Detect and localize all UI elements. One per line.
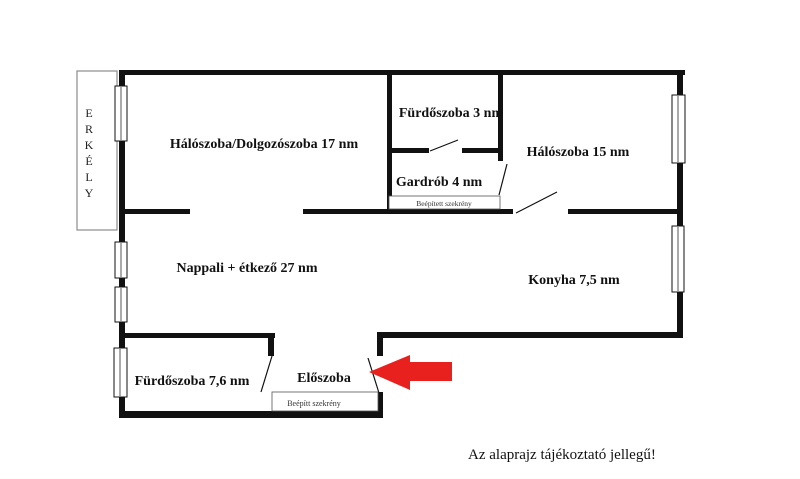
wall-bath76-top xyxy=(119,333,275,338)
living-window-2 xyxy=(115,287,127,322)
wall-mid-horizontal-center xyxy=(303,209,513,214)
room-label-bathroom-large: Fürdőszoba 7,6 nm xyxy=(135,374,250,389)
wardrobe-closet-label: Beépített szekrény xyxy=(416,199,472,208)
wall-bath3-wardrobe-right xyxy=(462,148,503,153)
bathroom-small-door xyxy=(430,140,458,151)
floor-plan-drawing: E R K É L Y xyxy=(0,0,800,479)
balcony-letter: Y xyxy=(85,186,94,200)
wall-bath3-wardrobe-left xyxy=(387,148,429,153)
wall-hallway-left-stub xyxy=(268,333,274,356)
room-label-living-dining: Nappali + étkező 27 nm xyxy=(177,261,318,276)
room-label-bathroom-small: Fürdőszoba 3 nm xyxy=(399,106,504,121)
balcony-letter: K xyxy=(85,138,94,152)
wall-hallway-right-upper xyxy=(377,332,383,356)
room-label-wardrobe: Gardrób 4 nm xyxy=(396,175,483,190)
floor-plan-page: E R K É L Y xyxy=(0,0,800,479)
windows xyxy=(114,86,685,397)
room-label-bedroom: Hálószoba 15 nm xyxy=(527,145,630,160)
balcony-letter: R xyxy=(85,122,93,136)
bathroom-large-door xyxy=(261,356,272,392)
disclaimer-note: Az alaprajz tájékoztató jellegű! xyxy=(468,447,656,463)
hallway-closet-label: Beépítt szekrény xyxy=(287,399,341,408)
wall-outer-bottom xyxy=(119,411,383,418)
balcony-door-window xyxy=(115,86,127,141)
kitchen-window xyxy=(672,226,684,292)
room-label-bedroom-office: Hálószoba/Dolgozószoba 17 nm xyxy=(170,137,359,152)
entrance-arrow-icon xyxy=(369,355,452,390)
wall-bedroom17-bath3-divider xyxy=(387,70,392,213)
wall-outer-top xyxy=(119,70,685,75)
balcony: E R K É L Y xyxy=(77,71,117,230)
bedroom15-window xyxy=(672,95,685,163)
room-label-kitchen: Konyha 7,5 nm xyxy=(528,273,620,288)
wall-mid-horizontal-right xyxy=(568,209,683,214)
balcony-outline xyxy=(77,71,117,230)
living-window-1 xyxy=(115,242,127,278)
balcony-letter: E xyxy=(85,106,92,120)
balcony-letter: É xyxy=(85,154,92,168)
bathroom-large-window xyxy=(114,348,127,397)
wall-mid-horizontal-left xyxy=(119,209,190,214)
room-label-hallway: Előszoba xyxy=(297,371,351,386)
wall-kitchen-bottom xyxy=(378,332,683,338)
balcony-letter: L xyxy=(85,170,92,184)
wardrobe-door xyxy=(499,164,507,195)
bedroom15-door xyxy=(516,192,557,213)
